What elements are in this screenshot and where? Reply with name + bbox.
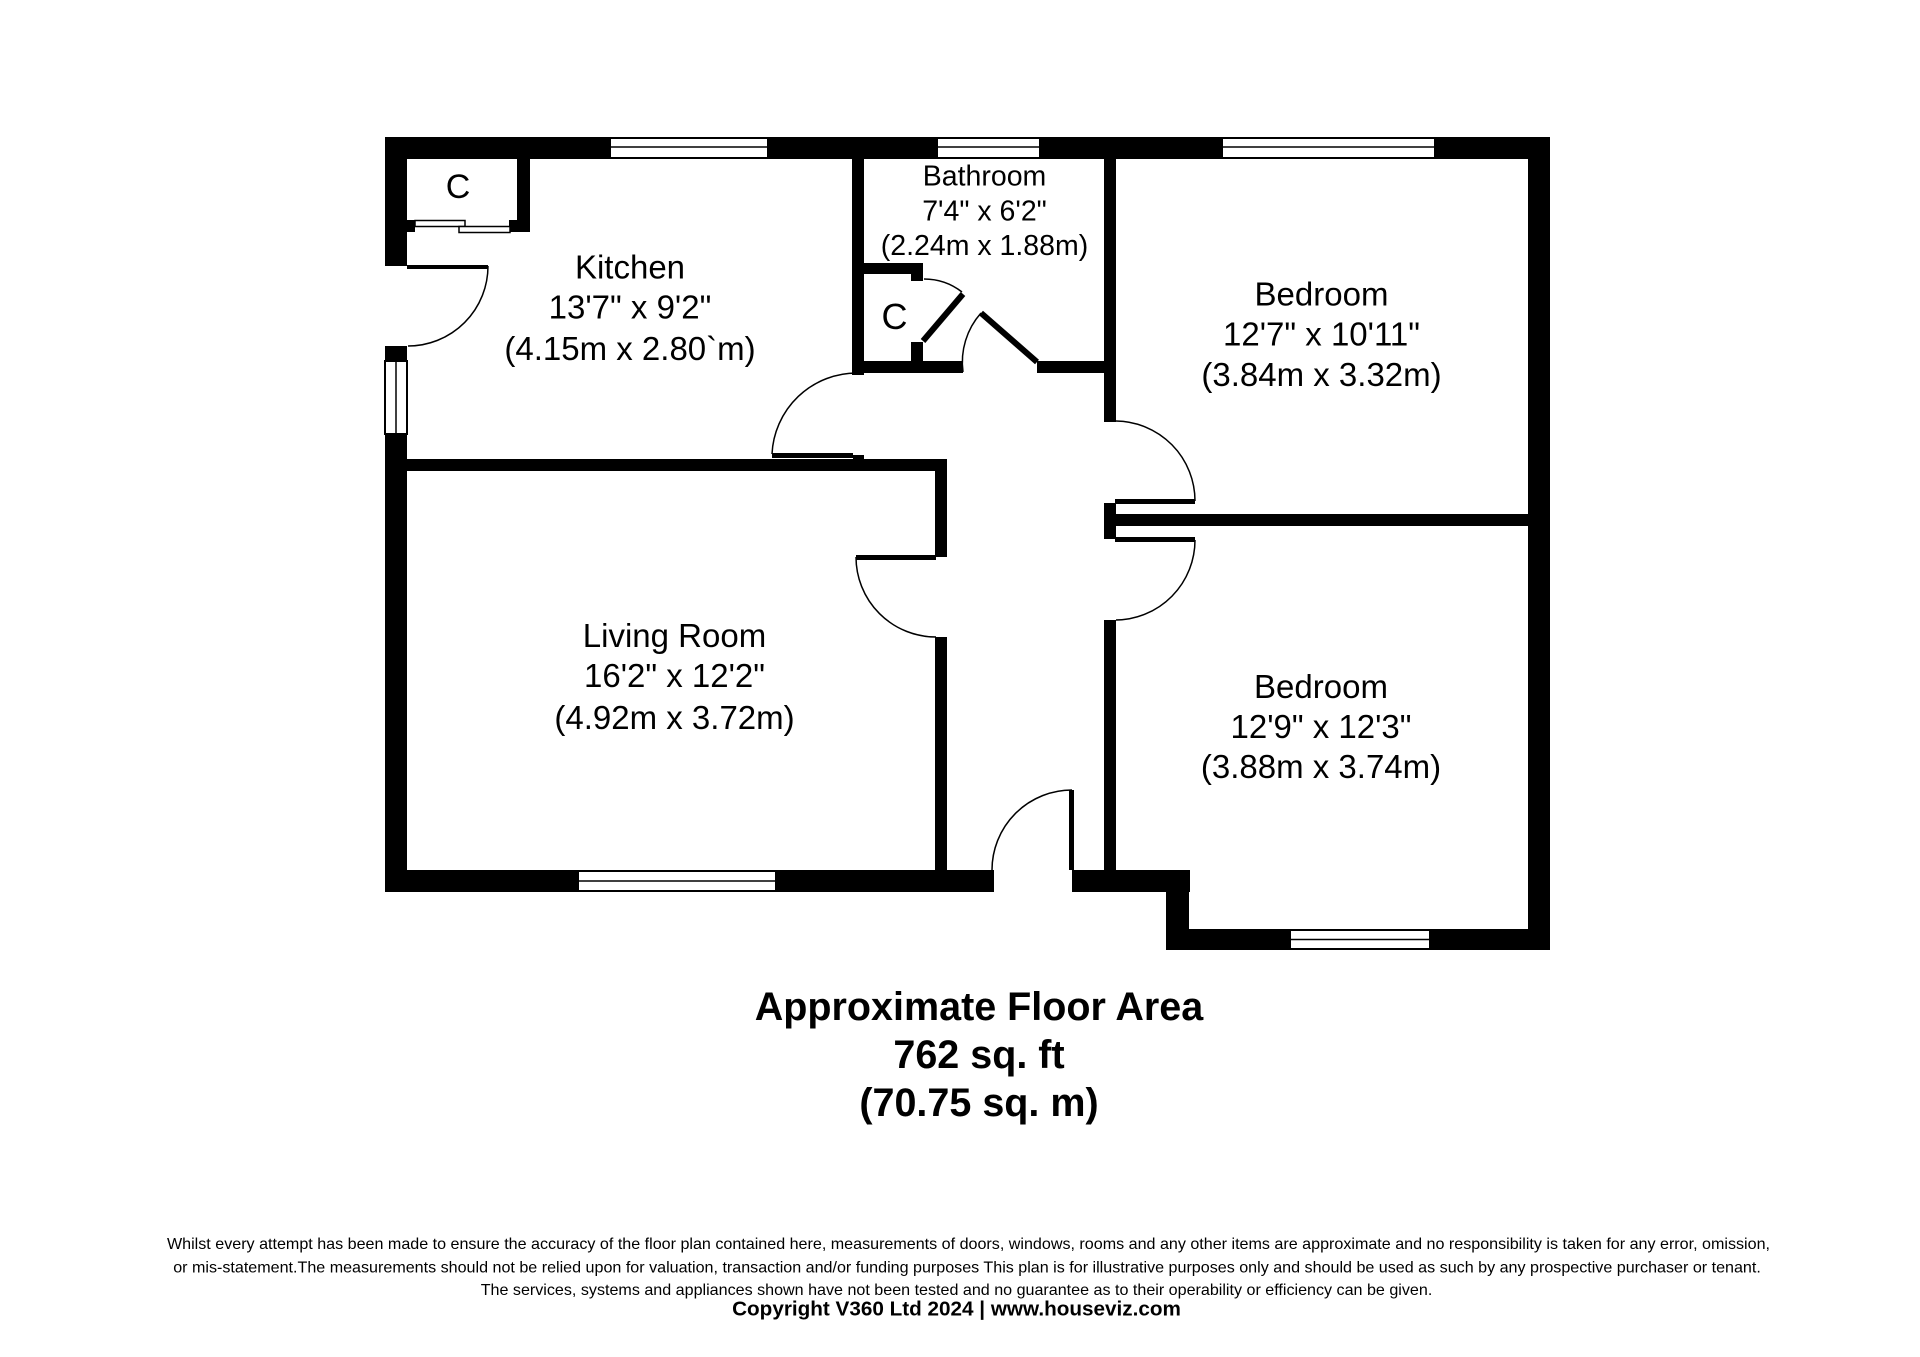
svg-text:Bathroom: Bathroom xyxy=(923,161,1047,193)
svg-text:(4.92m x 3.72m): (4.92m x 3.72m) xyxy=(554,699,794,736)
svg-text:(2.24m x 1.88m): (2.24m x 1.88m) xyxy=(881,230,1089,262)
svg-text:12'7" x 10'11": 12'7" x 10'11" xyxy=(1223,316,1420,353)
svg-text:Bedroom: Bedroom xyxy=(1254,668,1388,705)
svg-text:Whilst every attempt has been: Whilst every attempt has been made to en… xyxy=(167,1235,1770,1253)
svg-text:Bedroom: Bedroom xyxy=(1255,276,1389,313)
svg-text:Living Room: Living Room xyxy=(583,617,766,654)
svg-text:(3.84m x 3.32m): (3.84m x 3.32m) xyxy=(1201,356,1441,393)
svg-text:Kitchen: Kitchen xyxy=(575,249,685,286)
svg-text:Copyright V360 Ltd 2024 | www.: Copyright V360 Ltd 2024 | www.houseviz.c… xyxy=(732,1298,1181,1321)
svg-text:Approximate Floor Area: Approximate Floor Area xyxy=(755,985,1205,1029)
svg-text:C: C xyxy=(446,168,471,206)
svg-text:13'7" x 9'2": 13'7" x 9'2" xyxy=(549,289,712,326)
svg-text:(70.75 sq. m): (70.75 sq. m) xyxy=(859,1081,1098,1125)
svg-text:12'9" x 12'3": 12'9" x 12'3" xyxy=(1231,708,1412,745)
svg-text:(3.88m x 3.74m): (3.88m x 3.74m) xyxy=(1201,748,1441,785)
svg-text:7'4" x 6'2": 7'4" x 6'2" xyxy=(922,196,1047,228)
svg-text:762 sq. ft: 762 sq. ft xyxy=(893,1033,1064,1077)
svg-text:C: C xyxy=(882,296,908,337)
svg-text:or mis-statement.The measureme: or mis-statement.The measurements should… xyxy=(173,1259,1761,1277)
svg-text:The services, systems and appl: The services, systems and appliances sho… xyxy=(481,1281,1433,1299)
svg-text:16'2" x 12'2": 16'2" x 12'2" xyxy=(584,657,765,694)
svg-text:(4.15m x 2.80`m): (4.15m x 2.80`m) xyxy=(504,330,755,367)
